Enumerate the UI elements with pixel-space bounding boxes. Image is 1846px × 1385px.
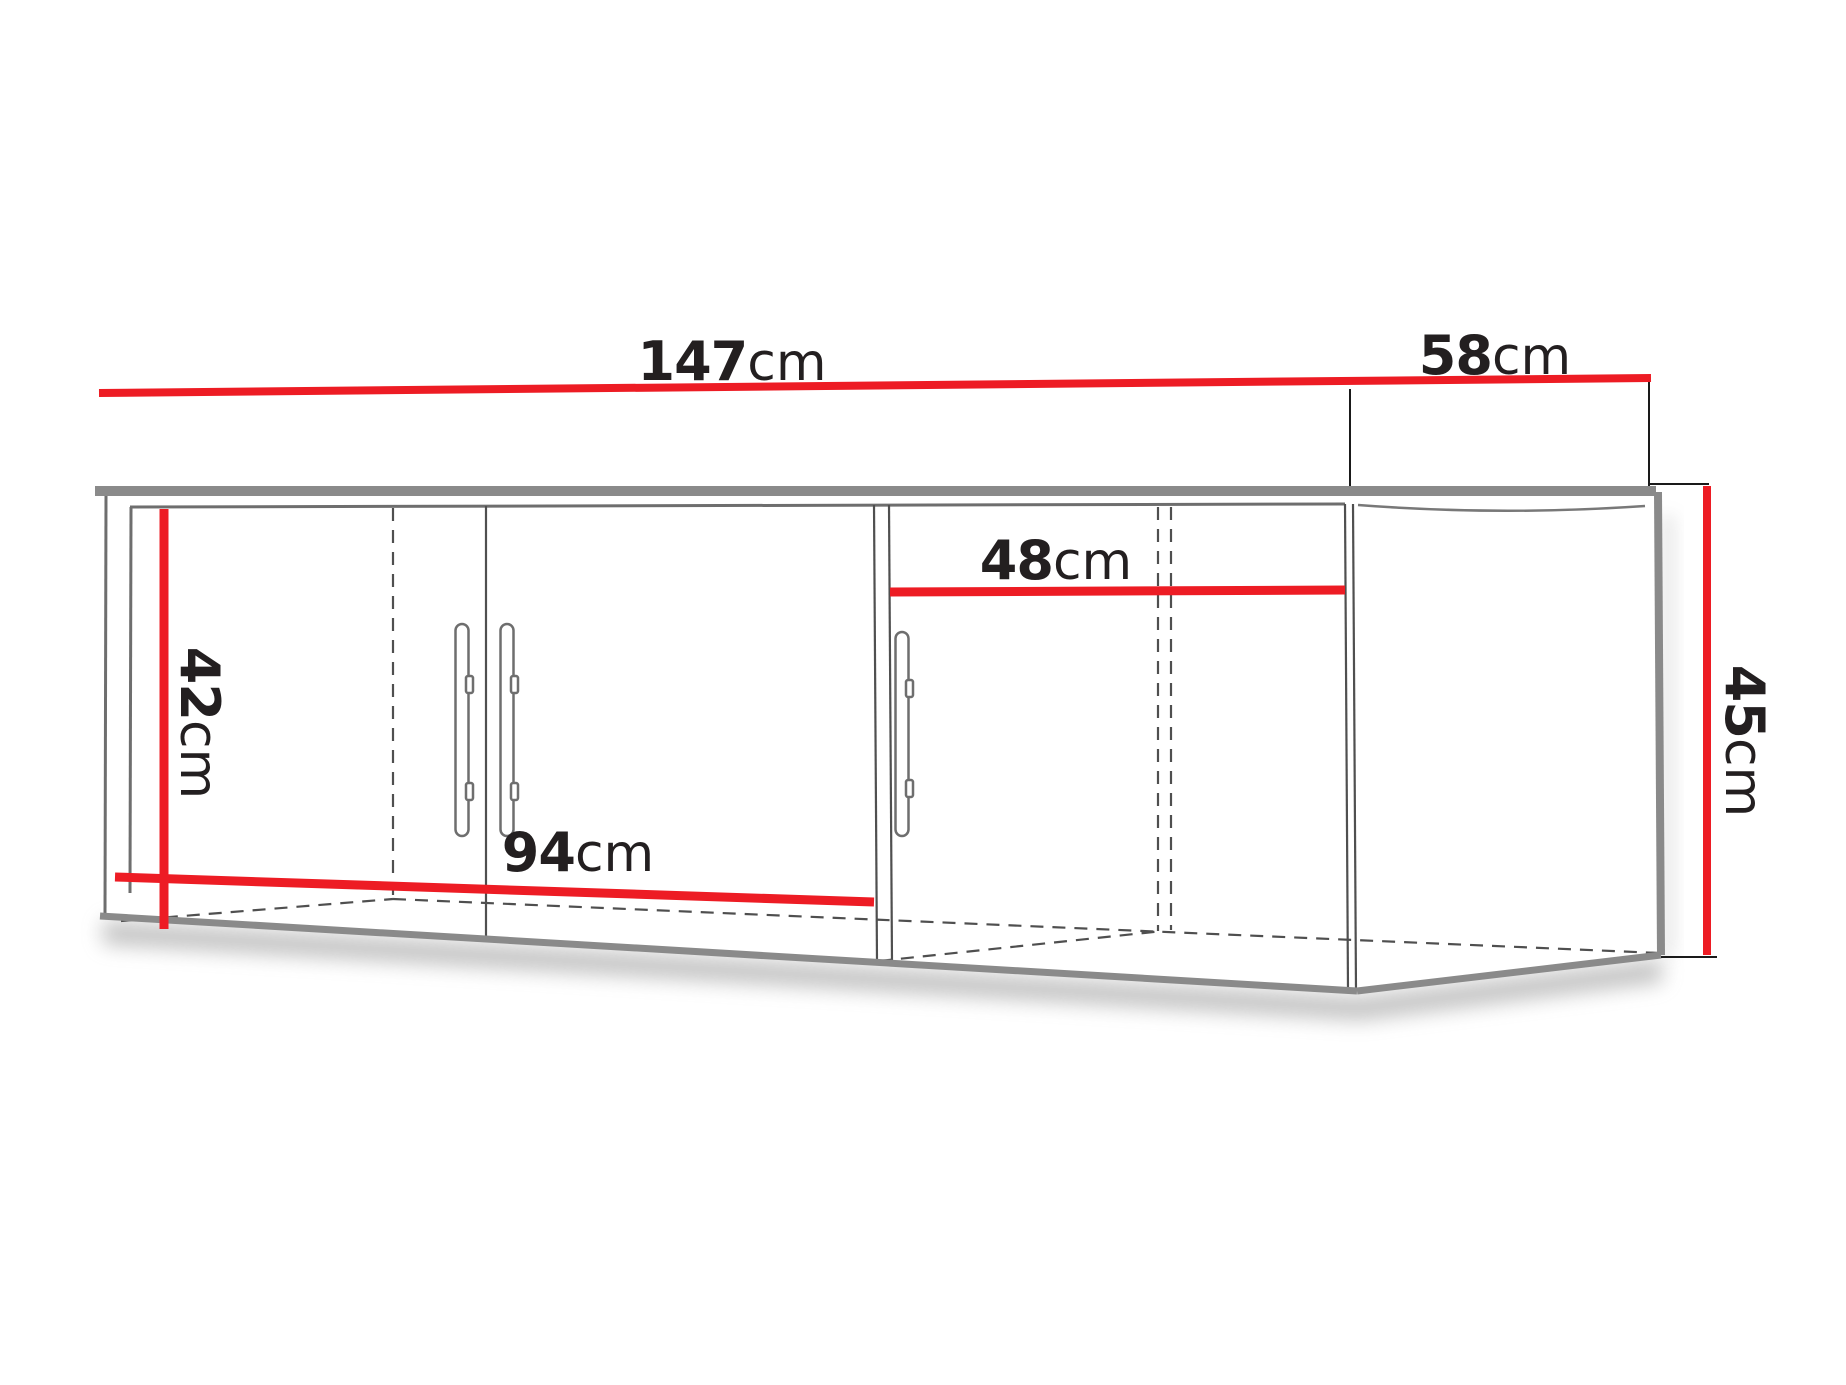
dimension-value: 42 (168, 647, 231, 720)
dimension-value: 147 (638, 330, 748, 393)
dimension-unit: cm (747, 333, 826, 393)
dimension-label-depth-58: 58cm (1419, 329, 1571, 383)
dimension-label-left-doors-94: 94cm (502, 826, 654, 880)
dimension-unit: cm (168, 720, 228, 799)
dimension-unit: cm (1492, 327, 1571, 387)
dimension-label-width-147: 147cm (638, 335, 827, 389)
dimension-label-interior-42: 42cm (172, 647, 226, 799)
cabinet-line-drawing (0, 0, 1846, 1385)
dimension-value: 48 (980, 529, 1053, 592)
dimension-label-height-45: 45cm (1717, 665, 1771, 817)
cabinet-faces (101, 491, 1662, 991)
dimension-value: 94 (502, 821, 575, 884)
dimension-label-right-door-48: 48cm (980, 534, 1132, 588)
furniture-dimension-diagram: 147cm 58cm 45cm 42cm 94cm 48cm (0, 0, 1846, 1385)
dimension-unit: cm (1713, 738, 1773, 817)
dimension-unit: cm (1053, 532, 1132, 592)
dimension-value: 45 (1713, 665, 1776, 738)
dimension-unit: cm (575, 824, 654, 884)
dimension-value: 58 (1419, 324, 1492, 387)
